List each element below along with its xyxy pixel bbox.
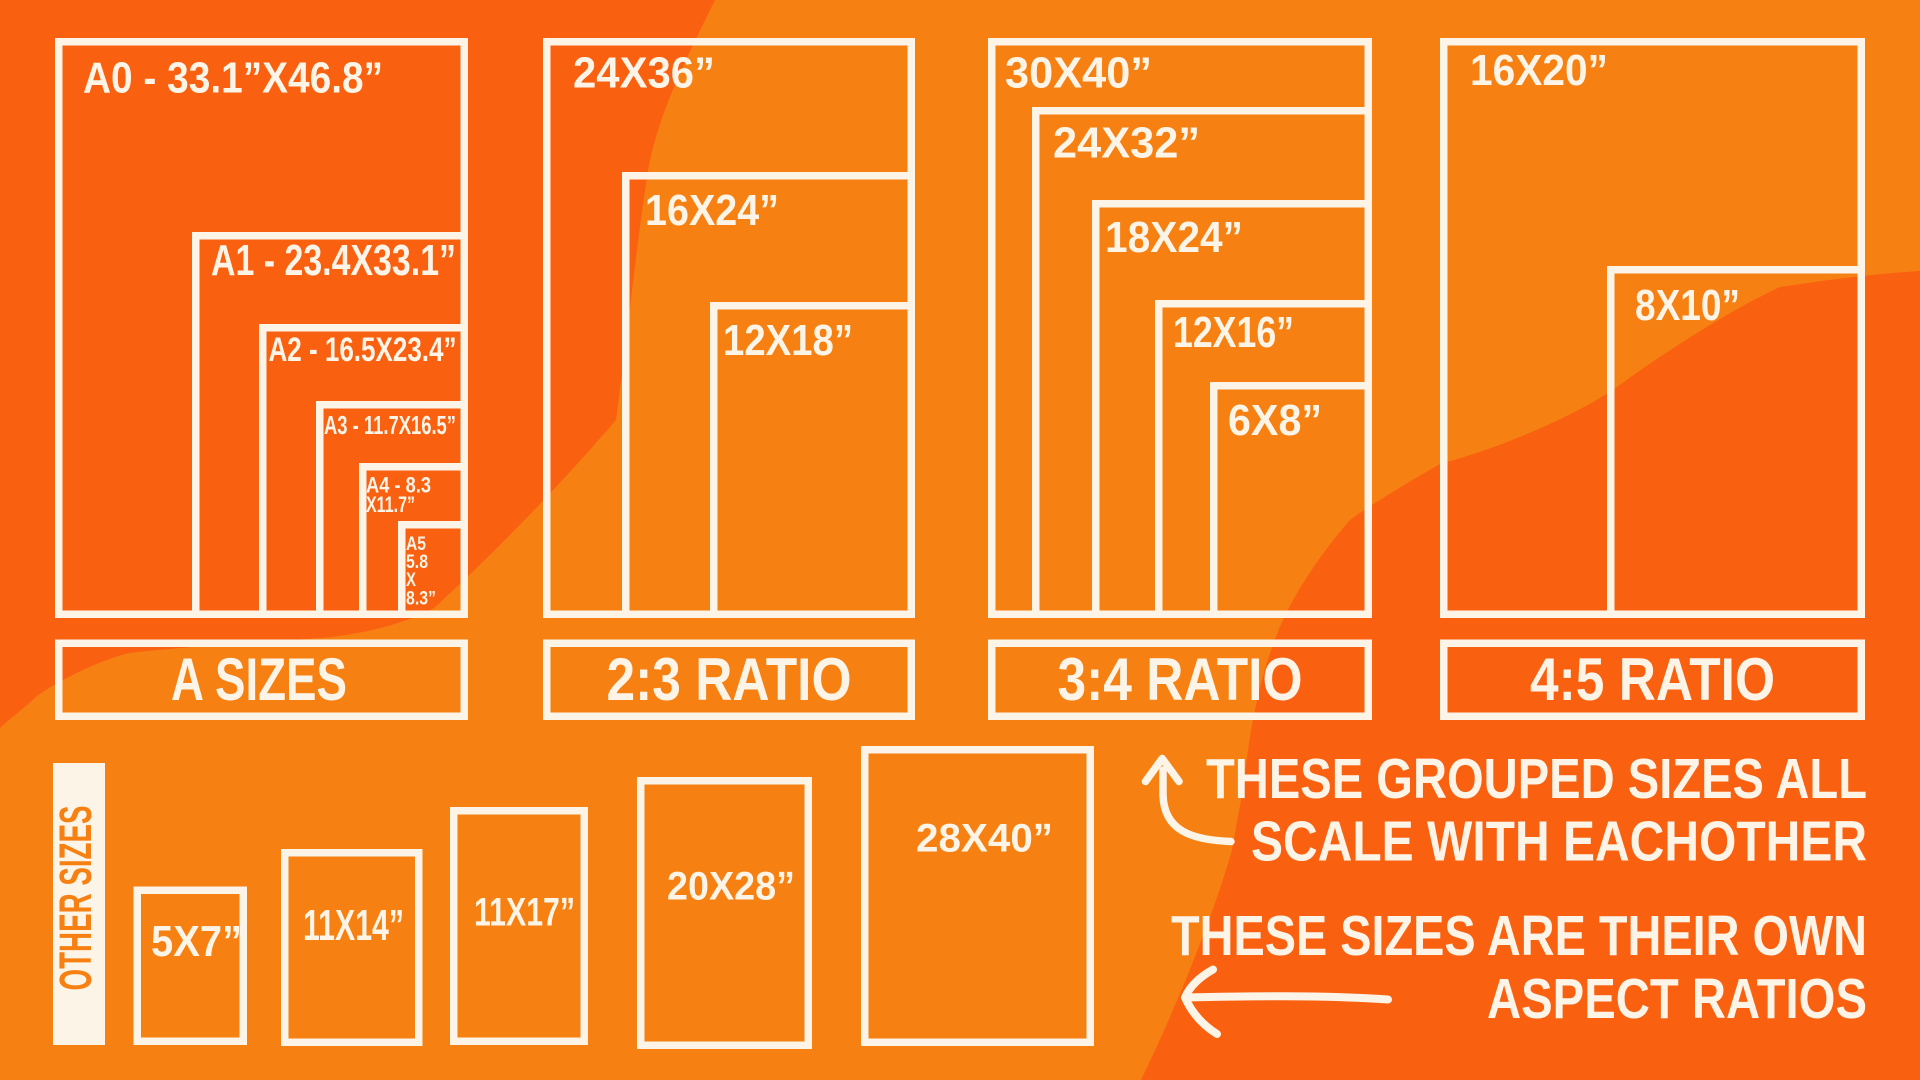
svg-text:11X14”: 11X14”: [303, 902, 404, 950]
svg-text:4:5 RATIO: 4:5 RATIO: [1530, 646, 1775, 713]
svg-text:28X40”: 28X40”: [916, 817, 1053, 861]
svg-text:OTHER SIZES: OTHER SIZES: [50, 806, 101, 991]
svg-text:6X8”: 6X8”: [1228, 397, 1322, 445]
svg-text:16X24”: 16X24”: [645, 187, 779, 235]
svg-text:16X20”: 16X20”: [1470, 47, 1608, 95]
svg-text:8.3”: 8.3”: [406, 589, 436, 610]
svg-text:18X24”: 18X24”: [1105, 214, 1243, 262]
svg-text:A2 - 16.5X23.4”: A2 - 16.5X23.4”: [269, 331, 457, 369]
svg-text:SCALE WITH EACHOTHER: SCALE WITH EACHOTHER: [1251, 810, 1867, 874]
svg-text:5X7”: 5X7”: [151, 918, 242, 966]
svg-text:30X40”: 30X40”: [1005, 50, 1152, 98]
svg-text:A0 - 33.1”X46.8”: A0 - 33.1”X46.8”: [83, 55, 383, 103]
svg-text:A1 - 23.4X33.1”: A1 - 23.4X33.1”: [211, 237, 456, 285]
svg-text:X11.7”: X11.7”: [366, 492, 415, 517]
svg-text:12X18”: 12X18”: [723, 317, 853, 365]
svg-text:THESE GROUPED SIZES ALL: THESE GROUPED SIZES ALL: [1206, 747, 1867, 811]
svg-text:11X17”: 11X17”: [474, 891, 575, 935]
svg-text:A3 - 11.7X16.5”: A3 - 11.7X16.5”: [324, 410, 456, 440]
svg-text:12X16”: 12X16”: [1173, 309, 1294, 357]
svg-text:ASPECT RATIOS: ASPECT RATIOS: [1487, 967, 1867, 1031]
svg-text:24X32”: 24X32”: [1053, 120, 1200, 168]
svg-text:2:3 RATIO: 2:3 RATIO: [607, 646, 852, 713]
svg-text:THESE SIZES ARE THEIR OWN: THESE SIZES ARE THEIR OWN: [1171, 904, 1867, 968]
svg-text:24X36”: 24X36”: [573, 50, 715, 98]
svg-text:A SIZES: A SIZES: [171, 646, 347, 713]
svg-text:20X28”: 20X28”: [667, 865, 795, 909]
svg-text:3:4 RATIO: 3:4 RATIO: [1058, 646, 1303, 713]
svg-text:8X10”: 8X10”: [1635, 282, 1740, 330]
